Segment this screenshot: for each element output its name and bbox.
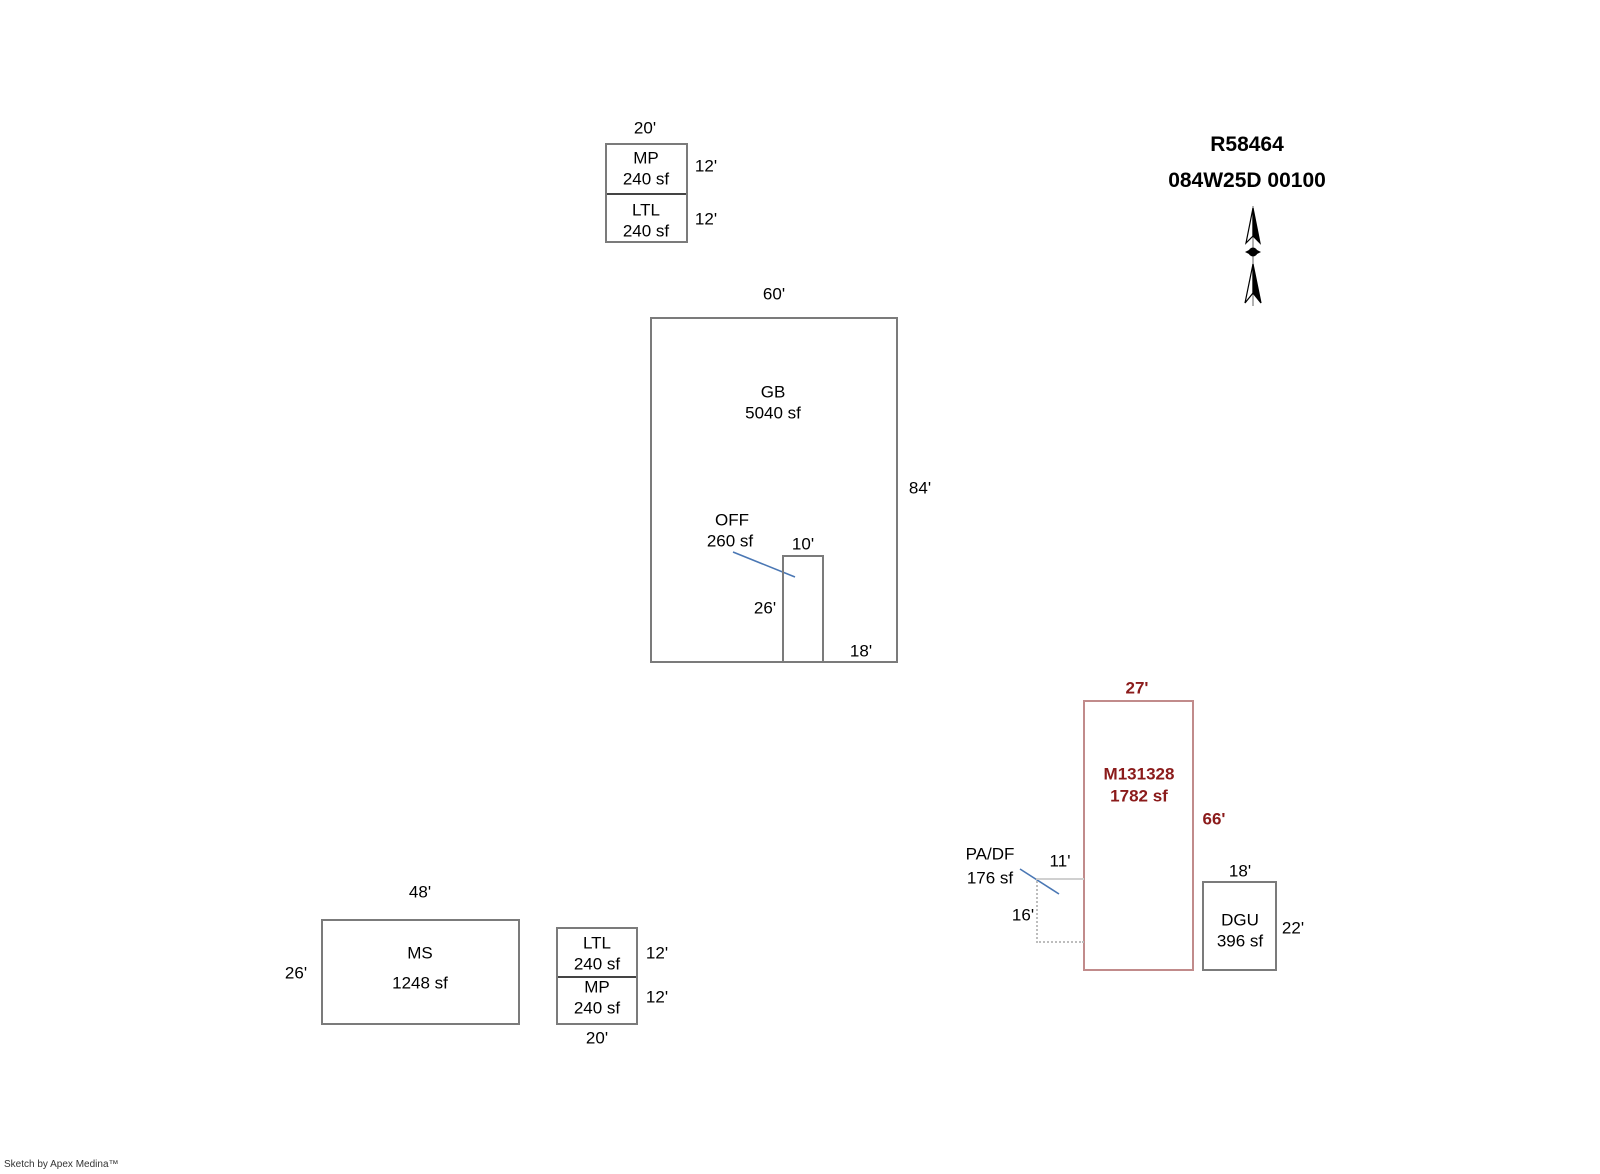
building-m131328-outline: [1083, 700, 1194, 971]
cell-area: 240 sf: [574, 1000, 620, 1017]
cell-label: MP: [584, 979, 610, 996]
dim-label: 20': [586, 1030, 608, 1047]
dim-label: 16': [1012, 907, 1034, 924]
building-m131328-label: M131328: [1104, 766, 1175, 783]
dim-label: 66': [1203, 811, 1226, 828]
north-arrow-icon: [1240, 206, 1266, 306]
building-dgu-label: DGU: [1221, 912, 1259, 929]
area-pa-df-area: 176 sf: [967, 870, 1013, 887]
building-gb-area: 5040 sf: [745, 405, 801, 422]
dim-label: 48': [409, 884, 431, 901]
dim-label: 60': [763, 286, 785, 303]
dim-label: 27': [1126, 680, 1149, 697]
area-pa-df-outline: [1036, 878, 1084, 943]
dim-label: 11': [1050, 853, 1071, 870]
area-off-outline: [782, 555, 824, 663]
building-ms-area: 1248 sf: [392, 975, 448, 992]
area-off-area: 260 sf: [707, 533, 753, 550]
area-pa-df-label: PA/DF: [966, 846, 1015, 863]
dim-label: 26': [285, 965, 307, 982]
cell-label: MP: [633, 150, 659, 167]
building-ms-outline: [321, 919, 520, 1025]
cell-area: 240 sf: [574, 956, 620, 973]
cell-area: 240 sf: [623, 223, 669, 240]
dim-label: 10': [792, 536, 814, 553]
dim-label: 22': [1282, 920, 1304, 937]
dim-label: 20': [634, 120, 656, 137]
dim-label: 18': [850, 643, 872, 660]
building-m131328-area: 1782 sf: [1110, 788, 1168, 805]
sketch-credit: Sketch by Apex Medina™: [4, 1159, 119, 1170]
sketch-canvas: R58464 084W25D 00100 20' MP 240 sf 12' L…: [0, 0, 1600, 1174]
cell-area: 240 sf: [623, 171, 669, 188]
area-off-label: OFF: [715, 512, 749, 529]
cell-label: LTL: [583, 935, 611, 952]
dim-label: 12': [695, 158, 717, 175]
building-dgu-area: 396 sf: [1217, 933, 1263, 950]
dim-label: 84': [909, 480, 931, 497]
dim-label: 26': [754, 600, 776, 617]
parcel-id: R58464: [1210, 133, 1284, 157]
building-gb-label: GB: [761, 384, 786, 401]
dim-label: 12': [646, 945, 668, 962]
dim-label: 12': [695, 211, 717, 228]
cell-label: LTL: [632, 202, 660, 219]
map-taxlot: 084W25D 00100: [1168, 169, 1326, 193]
dim-label: 12': [646, 989, 668, 1006]
building-ms-label: MS: [407, 945, 433, 962]
cell-divider: [607, 193, 686, 195]
dim-label: 18': [1229, 863, 1251, 880]
